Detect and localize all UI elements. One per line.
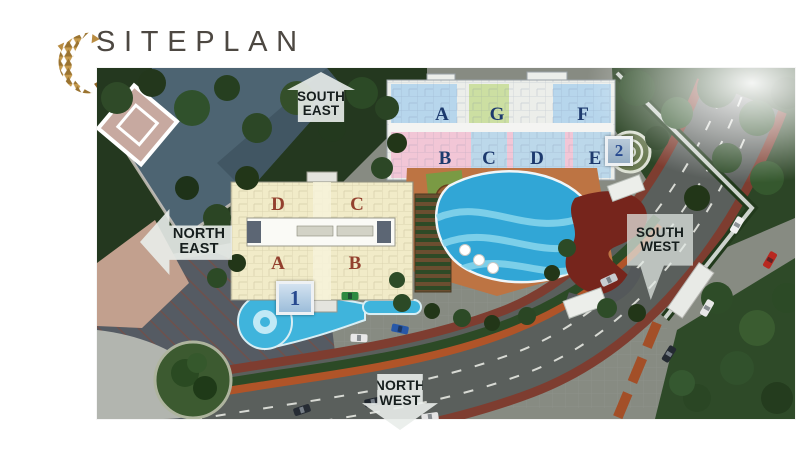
unit-label: C (350, 194, 364, 215)
unit-label: A (435, 104, 449, 125)
unit-label: C (482, 148, 496, 169)
page-title: SITEPLAN (96, 26, 306, 59)
siteplan-page: SITEPLAN (0, 0, 800, 450)
tower-2-floorplan: A G F B C D E (387, 72, 615, 180)
unit-label: D (271, 194, 285, 215)
circular-tree-planter (155, 342, 231, 418)
arrow-label: WEST (640, 240, 680, 254)
tower-1-floorplan: D C A B (231, 172, 413, 312)
arrow-label: SOUTH (636, 226, 684, 240)
arrow-label: WEST (379, 393, 420, 408)
tower-1-badge: 1 (276, 281, 314, 315)
arrow-label: NORTH (375, 378, 425, 393)
unit-label: A (271, 253, 285, 274)
arrow-label: SOUTH (297, 90, 345, 104)
arrow-label: NORTH (173, 227, 225, 242)
unit-label: F (577, 104, 589, 125)
lap-channel (363, 300, 421, 314)
arrow-label: EAST (179, 242, 218, 257)
unit-label: D (530, 148, 544, 169)
unit-label: B (349, 253, 362, 274)
tower-2-badge: 2 (605, 136, 633, 166)
unit-label: B (439, 148, 452, 169)
arrow-label: EAST (303, 104, 340, 118)
unit-label: G (490, 104, 505, 125)
unit-label: E (589, 148, 602, 169)
